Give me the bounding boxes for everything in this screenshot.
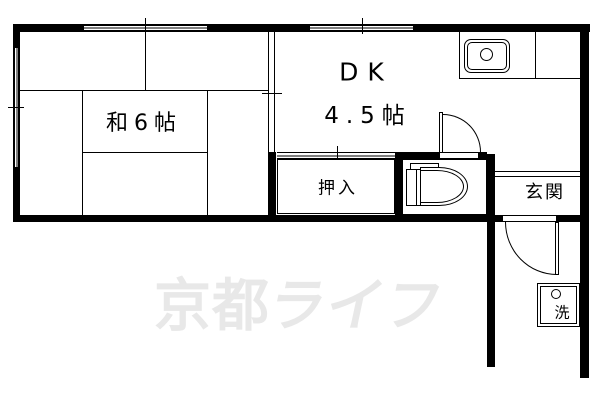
toilet-tank-line — [416, 170, 417, 205]
counter-front-line — [459, 78, 581, 79]
bottom-wall-right-segment — [556, 215, 589, 222]
oshiire-fusuma-doors — [277, 152, 395, 159]
sink-drain-icon — [480, 48, 493, 61]
partition-tick — [262, 93, 282, 94]
tatami-line-v2 — [82, 90, 83, 215]
corridor-left-wall — [487, 154, 495, 367]
dk-room-label: DK — [339, 58, 393, 87]
top-wall-left — [13, 24, 84, 32]
watermark-part-kanji: 京都 — [154, 273, 270, 339]
top-wall-middle — [207, 24, 310, 32]
tatami-line-v1 — [145, 32, 146, 90]
tatami-line-h1 — [20, 90, 268, 91]
genkan-step-line — [495, 171, 580, 177]
tatami-line-h2 — [82, 152, 207, 153]
oshiire-label: 押入 — [318, 174, 358, 199]
right-wall — [580, 32, 589, 378]
genkan-label: 玄関 — [525, 178, 565, 204]
toilet-top-wall-right — [478, 152, 487, 159]
toilet-tank — [406, 169, 421, 206]
entrance-door-swing-arc — [505, 222, 557, 275]
window-tick-top-2 — [362, 18, 363, 34]
toilet-bowl-inner-line — [420, 170, 464, 203]
tatami-line-v3 — [207, 90, 208, 215]
closet-toilet-divider-wall — [395, 152, 402, 222]
entrance-door-threshold — [503, 215, 556, 222]
top-wall-right — [413, 24, 590, 32]
fusuma-center-line — [277, 155, 395, 156]
watermark-part-katakana: ライフ — [261, 260, 452, 342]
left-wall-lower — [13, 167, 20, 222]
toilet-door-swing-arc — [443, 114, 481, 152]
dk-room-size-label: 4.5帖 — [324, 96, 412, 130]
counter-left-line — [459, 32, 460, 78]
washitsu-room-label: 和6帖 — [106, 105, 182, 137]
left-wall-upper — [13, 32, 20, 48]
window-tick-left — [8, 107, 24, 108]
washitsu-dk-wall-column — [268, 152, 276, 222]
laundry-label: 洗 — [554, 302, 569, 323]
bottom-wall-main — [13, 215, 503, 222]
kyoto-life-watermark: 京都ライフ — [154, 260, 444, 342]
floor-plan: 和6帖 DK 4.5帖 押入 玄関 洗 京都ライフ — [0, 0, 600, 400]
sliding-partition-washitsu-dk — [268, 32, 275, 152]
washing-machine-faucet-icon — [551, 289, 561, 299]
counter-divider-line — [535, 32, 536, 78]
toilet-door-threshold — [440, 152, 478, 159]
toilet-top-wall-left — [402, 152, 440, 159]
